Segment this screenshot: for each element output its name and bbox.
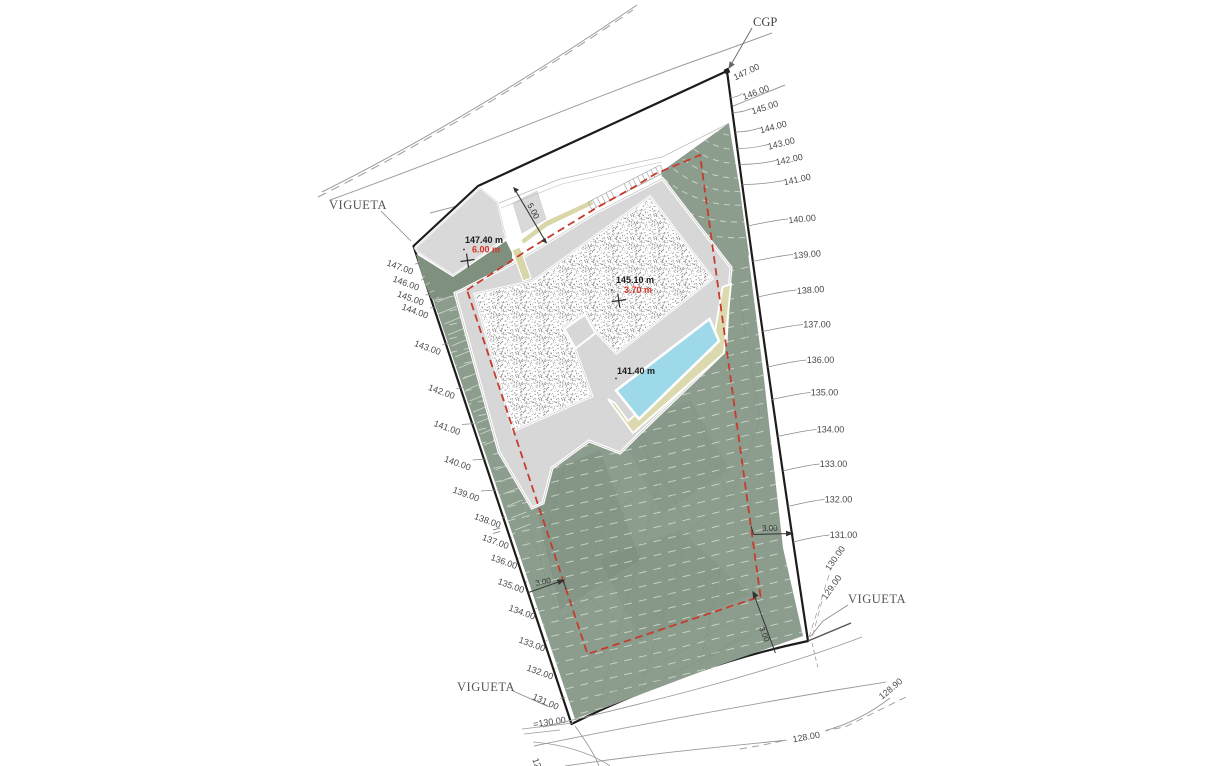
svg-text:133.00: 133.00 xyxy=(820,459,848,469)
svg-text:138.00: 138.00 xyxy=(796,284,824,296)
svg-text:147.40 m: 147.40 m xyxy=(465,235,503,245)
svg-text:132.00: 132.00 xyxy=(825,495,853,505)
svg-text:CGP: CGP xyxy=(753,15,777,29)
svg-text:136.00: 136.00 xyxy=(807,355,835,365)
svg-text:VIGUETA: VIGUETA xyxy=(329,198,387,212)
svg-text:134.00: 134.00 xyxy=(817,425,845,435)
svg-text:145.10 m: 145.10 m xyxy=(616,275,654,285)
svg-text:6.00 m: 6.00 m xyxy=(472,245,500,255)
svg-text:137.00: 137.00 xyxy=(803,320,831,330)
svg-text:VIGUETA: VIGUETA xyxy=(848,592,906,606)
svg-text:VIGUETA: VIGUETA xyxy=(457,680,515,694)
svg-text:3.00: 3.00 xyxy=(762,524,778,533)
svg-text:141.40 m: 141.40 m xyxy=(617,366,655,376)
svg-text:135.00: 135.00 xyxy=(811,388,839,398)
svg-text:131.00: 131.00 xyxy=(830,530,858,540)
svg-text:3.70 m: 3.70 m xyxy=(624,285,652,295)
